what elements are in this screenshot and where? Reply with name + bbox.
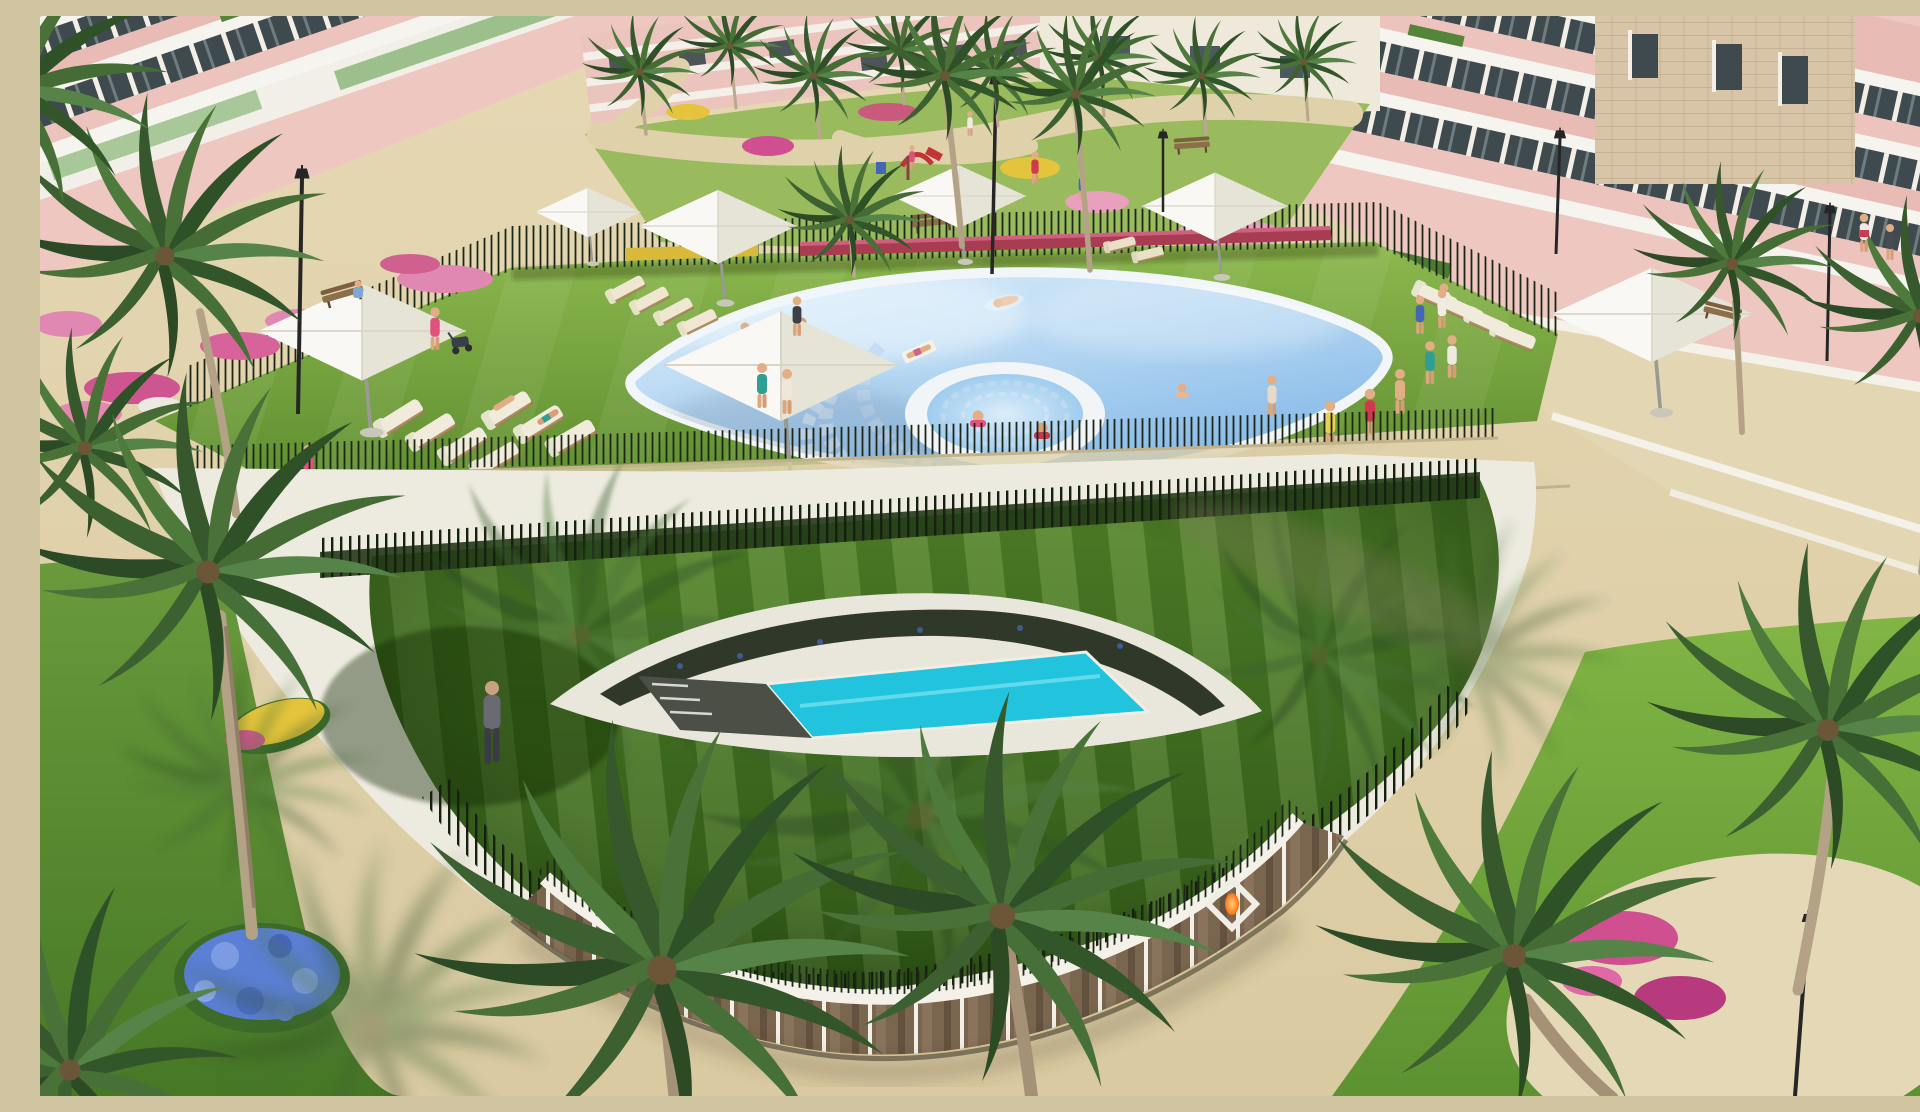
flower-bed-yellow-garden — [1000, 157, 1060, 179]
render-canvas — [40, 16, 1920, 1096]
resort-aerial-render: Aerial 3D architectural rendering of a s… — [40, 16, 1920, 1096]
flower-bed-magenta-garden — [742, 136, 794, 156]
